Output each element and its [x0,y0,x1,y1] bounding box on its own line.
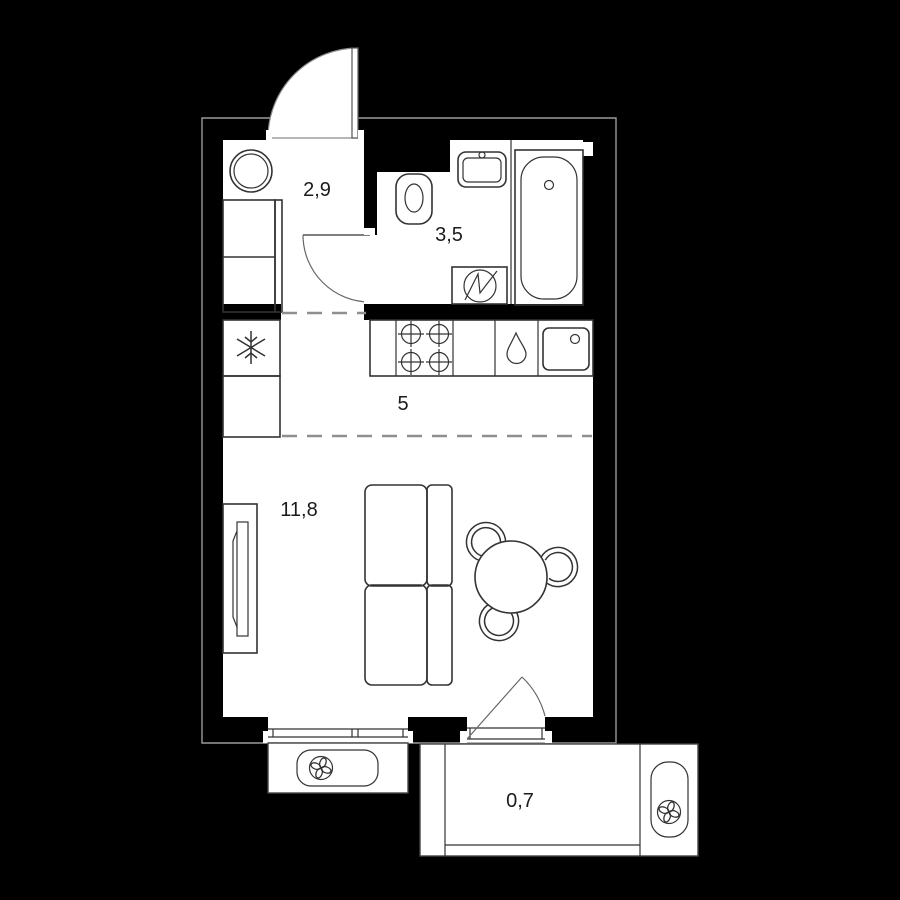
hallway-floor [223,140,364,717]
entrance-jamb-right [358,130,364,140]
entrance-jamb-left [266,130,272,140]
entrance-door-swing [268,48,358,138]
living-room-area-label: 11,8 [280,499,317,521]
balcony-outline [420,744,698,856]
balcony-area-label: 0,7 [506,790,534,812]
entrance-door-leaf [352,48,358,138]
bathroom-corner-notch [583,142,593,156]
bathroom-jamb-top [364,228,375,235]
room-fills [223,118,593,743]
balcony-structure [420,744,698,856]
bathroom-bottom-wall [364,304,616,320]
bathroom-left-wall [364,140,377,235]
round-table [475,541,547,613]
fan-icon-left [310,757,333,780]
bathroom-jamb-bottom [364,297,375,304]
kitchen-living-floor [364,320,593,717]
fan-icon-right [658,801,681,824]
ac-basket-left [268,743,408,793]
entrance-door [266,48,364,140]
window-opening [268,717,408,743]
bathroom-area-label: 3,5 [435,224,463,246]
kitchen-area-label: 5 [397,393,408,415]
floor-plan: 2,9 3,5 5 11,8 0,7 [0,0,900,900]
floor-plan-canvas: 2,9 3,5 5 11,8 0,7 [0,0,900,900]
hallway-area-label: 2,9 [303,179,331,201]
bathroom-right-wall [583,140,593,320]
bathroom-door-opening [364,235,377,304]
